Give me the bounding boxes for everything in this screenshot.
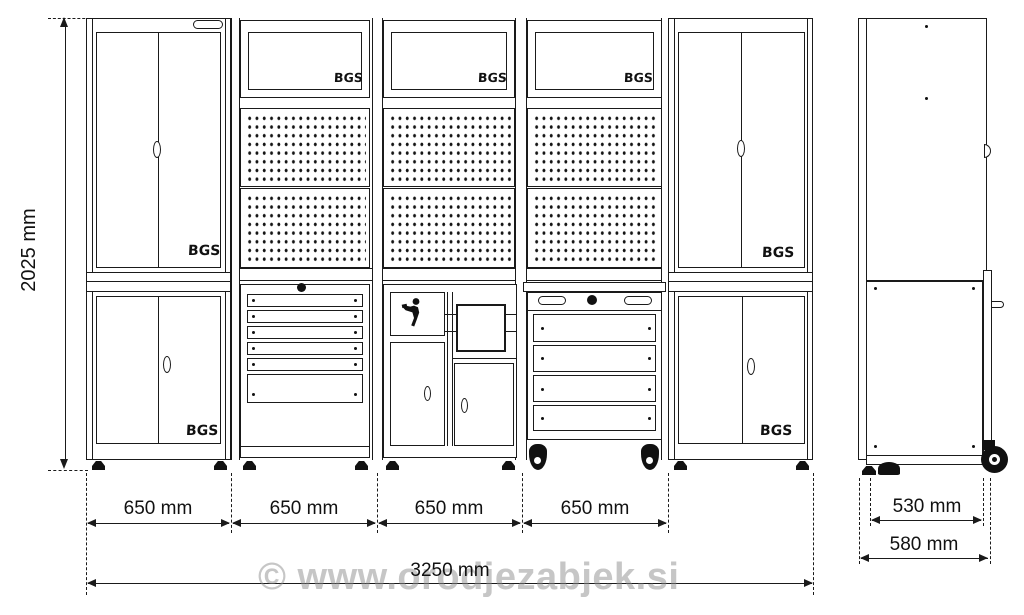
leveling-foot-icon: [502, 461, 515, 470]
extension-line-bottom: [48, 470, 88, 471]
drawer: [247, 294, 363, 307]
pegboard-panel: [240, 188, 370, 268]
shelf-bracket-line: [505, 314, 517, 315]
total-width-label: 3250 mm: [390, 560, 510, 582]
segment-width-label: 650 mm: [244, 498, 364, 520]
drawer-knob-icon: [252, 299, 255, 302]
segment-width-label: 650 mm: [535, 498, 655, 520]
module3-paper-shelf: [456, 304, 506, 352]
pegboard-panel: [527, 108, 662, 187]
drawer-knob-icon: [252, 315, 255, 318]
arrow-right-icon: [367, 519, 376, 527]
module5-left-stile: [674, 18, 675, 460]
module2-plinth-line: [240, 446, 370, 447]
dimension-line: [872, 520, 981, 521]
drawer-knob-icon: [648, 327, 651, 330]
height-dimension-line: [65, 25, 66, 462]
arrow-right-icon: [804, 579, 813, 587]
person-disposal-icon: [401, 297, 425, 331]
drawer: [247, 326, 363, 339]
pegboard-holes: [531, 112, 658, 183]
drawer-knob-icon: [648, 417, 651, 420]
module5-lower-door-split: [742, 296, 743, 444]
module1-mid-band: [86, 272, 231, 292]
pegboard-holes: [531, 192, 658, 264]
fixing-hole-icon: [874, 287, 877, 290]
leveling-foot-icon: [862, 466, 876, 475]
arrow-right-icon: [512, 519, 521, 527]
door-handle-icon: [461, 398, 468, 413]
trolley-top-rail-line: [527, 310, 662, 311]
leveling-foot-icon: [243, 461, 256, 470]
pegboard-panel: [527, 188, 662, 268]
lock-icon: [297, 283, 306, 292]
trolley-handle-slot-icon: [624, 296, 652, 305]
frame-post: [661, 18, 669, 460]
side-lower-body: [866, 281, 983, 457]
leveling-foot-icon: [92, 461, 105, 470]
frame-post: [231, 18, 240, 460]
leveling-foot-icon: [386, 461, 399, 470]
bgs-logo: BGS: [478, 72, 507, 85]
drawer-knob-icon: [541, 417, 544, 420]
extension-line: [990, 478, 991, 564]
door-handle-icon: [737, 140, 745, 157]
drawer-knob-icon: [252, 347, 255, 350]
module1-right-stile: [225, 18, 226, 460]
arrow-left-icon: [523, 519, 532, 527]
shelf-bracket-line: [444, 331, 456, 332]
arrow-left-icon: [87, 519, 96, 527]
dimension-line: [233, 523, 375, 524]
extension-line: [86, 473, 87, 595]
fixing-hole-icon: [972, 287, 975, 290]
module1-mid-band-line: [86, 281, 231, 282]
fixing-hole-icon: [972, 445, 975, 448]
drawer-knob-icon: [252, 363, 255, 366]
trolley-handle-slot-icon: [538, 296, 566, 305]
leveling-foot-icon: [796, 461, 809, 470]
pegboard-holes: [244, 112, 366, 183]
extension-line: [859, 478, 860, 564]
leveling-foot-icon: [214, 461, 227, 470]
extension-line: [668, 473, 669, 533]
leveling-foot-icon: [674, 461, 687, 470]
side-upper-body: [866, 18, 987, 281]
door-handle-icon: [747, 358, 755, 375]
shelf-bracket-line: [505, 331, 517, 332]
technical-drawing: 2025 mm BGS BGS BGS BGS BGS BGS BGS: [0, 0, 1024, 615]
drawer-knob-icon: [354, 393, 357, 396]
drawer-knob-icon: [648, 388, 651, 391]
module5-mid-band: [668, 272, 813, 292]
module1-lower-door-split: [158, 296, 159, 444]
caster-wheel-icon: [528, 444, 548, 472]
leveling-foot-icon: [355, 461, 368, 470]
drawer-knob-icon: [252, 331, 255, 334]
pegboard-holes: [387, 192, 511, 264]
arrow-up-icon: [60, 17, 68, 27]
pegboard-holes: [387, 112, 511, 183]
segment-width-label: 650 mm: [98, 498, 218, 520]
overall-depth-label: 580 mm: [864, 534, 984, 556]
arrow-right-icon: [221, 519, 230, 527]
trolley-drawer: [533, 375, 656, 402]
caster-wheel-icon: [878, 462, 900, 475]
bgs-logo: BGS: [760, 424, 793, 438]
module3-left-door: [390, 342, 445, 446]
drawer-knob-icon: [252, 393, 255, 396]
trolley-drawer: [533, 405, 656, 431]
bgs-logo: BGS: [334, 72, 363, 85]
dimension-line: [88, 523, 229, 524]
caster-axle-icon: [992, 457, 997, 462]
module3-center-divider: [447, 292, 453, 446]
dimension-line: [524, 523, 666, 524]
drawer-knob-icon: [541, 357, 544, 360]
drawer: [247, 310, 363, 323]
arrow-down-icon: [60, 459, 68, 469]
door-handle-icon: [163, 356, 171, 373]
arrow-left-icon: [378, 519, 387, 527]
worktop: [232, 268, 668, 281]
drawer-knob-icon: [354, 363, 357, 366]
door-handle-icon: [424, 386, 431, 401]
caster-wheel-icon: [640, 444, 660, 472]
bgs-logo: BGS: [186, 424, 219, 438]
side-door-handle-icon: [984, 144, 991, 158]
arrow-left-icon: [232, 519, 241, 527]
module5-mid-band-line: [668, 281, 813, 282]
segment-width-label: 650 mm: [389, 498, 509, 520]
trolley-top-tray: [523, 282, 666, 292]
cabinet-depth-label: 530 mm: [867, 496, 987, 518]
drawer-deep: [247, 374, 363, 403]
drawer-knob-icon: [354, 347, 357, 350]
pegboard-panel: [240, 108, 370, 187]
arrow-left-icon: [87, 579, 96, 587]
fixing-hole-icon: [925, 25, 928, 28]
trolley-drawer: [533, 314, 656, 342]
drawer-knob-icon: [354, 299, 357, 302]
pegboard-panel: [383, 188, 515, 268]
height-dimension-label: 2025 mm: [18, 150, 40, 350]
module3-shelf-rail: [453, 358, 517, 359]
drawer-knob-icon: [354, 315, 357, 318]
bgs-logo: BGS: [762, 246, 795, 260]
bgs-logo: BGS: [188, 244, 221, 258]
side-rear-rail: [983, 270, 992, 455]
drawer: [247, 342, 363, 355]
extension-line: [813, 473, 814, 595]
drawer: [247, 358, 363, 371]
drawer-knob-icon: [648, 357, 651, 360]
drawer-knob-icon: [541, 327, 544, 330]
module1-left-stile: [92, 18, 93, 460]
drawer-knob-icon: [541, 388, 544, 391]
module5-right-stile: [807, 18, 808, 460]
door-handle-icon: [153, 141, 161, 158]
module1-lock-plate: [193, 20, 223, 29]
trolley-drawer: [533, 345, 656, 372]
side-push-handle: [991, 301, 1004, 308]
module3-waste-compartment: [390, 292, 445, 336]
arrow-right-icon: [658, 519, 667, 527]
dimension-line: [379, 523, 520, 524]
drawer-knob-icon: [354, 331, 357, 334]
bgs-logo: BGS: [624, 72, 653, 85]
shelf-bracket-line: [444, 314, 456, 315]
lock-icon: [587, 295, 597, 305]
fixing-hole-icon: [925, 97, 928, 100]
pegboard-holes: [244, 192, 366, 264]
pegboard-panel: [383, 108, 515, 187]
fixing-hole-icon: [874, 445, 877, 448]
dimension-line: [861, 558, 988, 559]
frame-post: [372, 18, 383, 460]
